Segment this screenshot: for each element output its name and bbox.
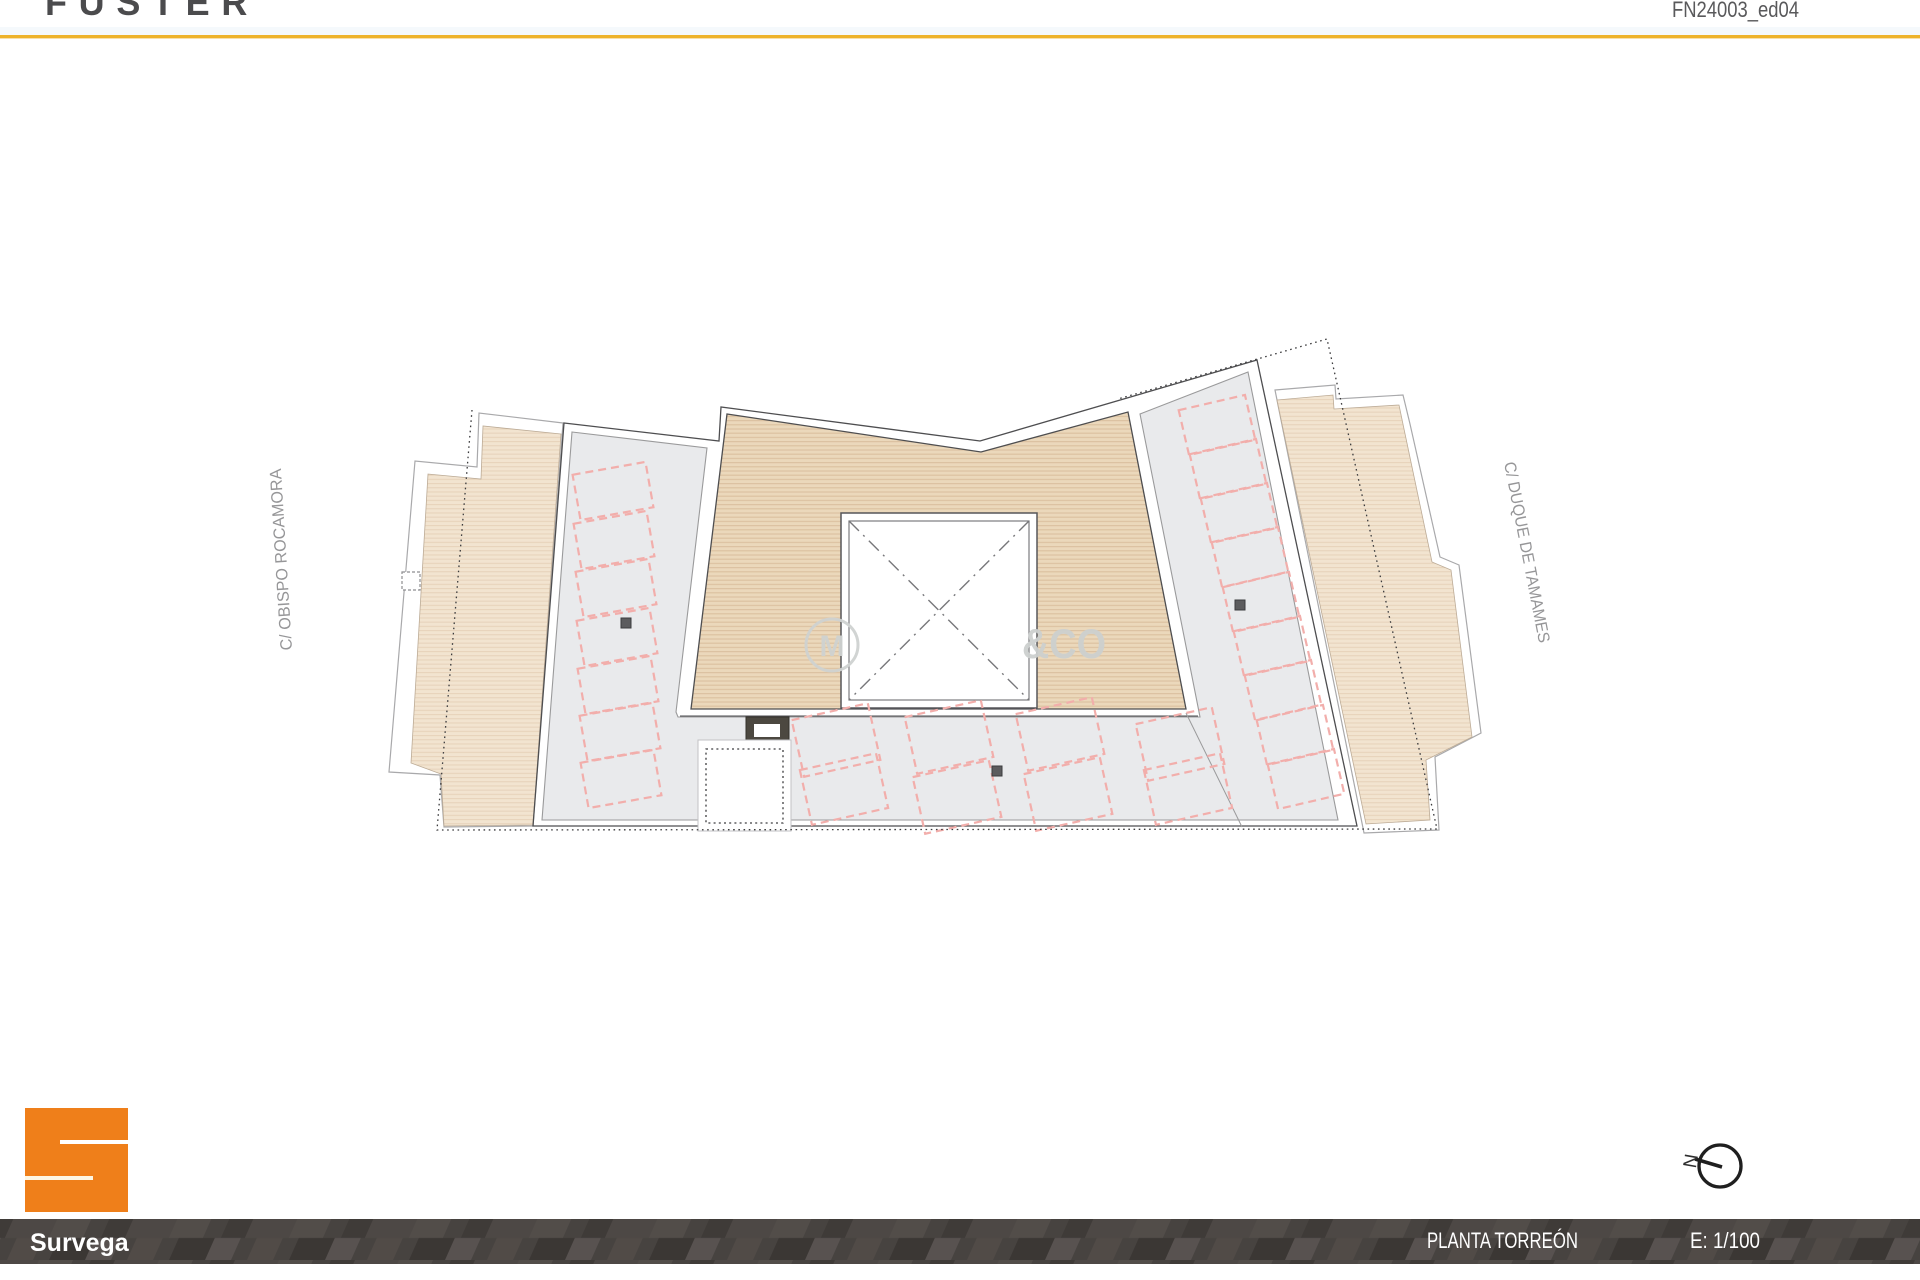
svg-text:M: M [820, 630, 845, 663]
svg-text:FN24003_ed04: FN24003_ed04 [1672, 0, 1799, 22]
svg-text:FUSTER: FUSTER [45, 0, 259, 23]
svg-text:E: 1/100: E: 1/100 [1690, 1228, 1760, 1253]
svg-text:PLANTA TORREÓN: PLANTA TORREÓN [1427, 1228, 1578, 1253]
svg-text:&CO: &CO [1022, 620, 1106, 667]
svg-text:Survega: Survega [30, 1229, 130, 1257]
